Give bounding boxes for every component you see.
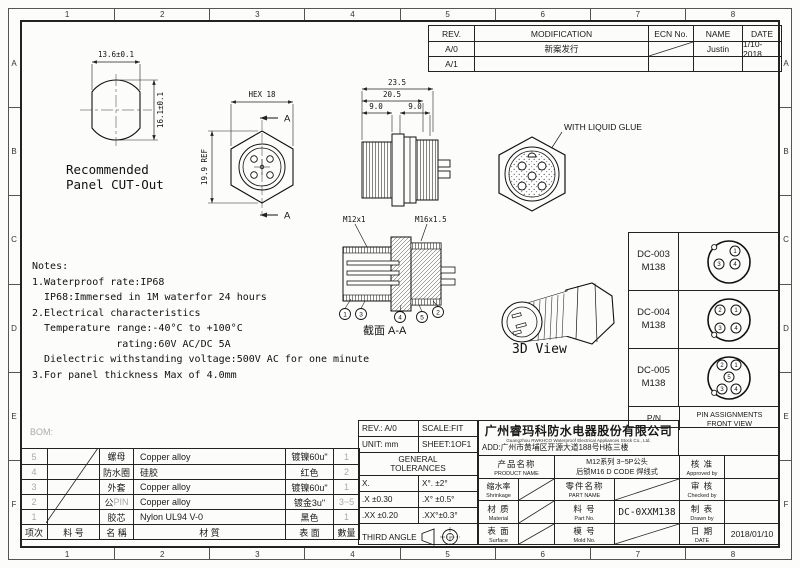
bom-qty: 1 [333, 479, 359, 494]
grid-row-label: D [780, 284, 792, 372]
shrinkage-value [518, 479, 554, 500]
product-name-value: M12系列 3~5P公头 后锁M16 D CODE 焊线式 [554, 456, 679, 478]
tol-xx: .XX ±0.20 [359, 508, 418, 523]
dim-total: 23.5 [388, 78, 406, 87]
grid-col-label: 6 [495, 548, 590, 560]
drawing-sheet: 12345678 12345678 ABCDEF ABCDEF REV. MOD… [0, 0, 800, 568]
balloon-4: 4 [398, 314, 402, 321]
rev-cell: A/0 [429, 41, 474, 56]
notes-block: Notes: 1.Waterproof rate:IP68 IP68:Immer… [32, 259, 369, 383]
bom-surface: 红色 [285, 464, 333, 479]
grid-col-label: 7 [590, 8, 685, 20]
pin-diagram-cell: 2 1 5 3 4 [679, 349, 779, 406]
third-angle-projection-icon [419, 526, 463, 548]
rev-header: MODIFICATION [474, 26, 648, 41]
revision-table: REV. MODIFICATION ECN No. NAME DATE A/0 … [428, 25, 782, 72]
grid-row-label: E [780, 372, 792, 460]
section-mark-top: A [284, 114, 291, 125]
tol-linear-header: X. [359, 476, 418, 491]
rev-header: REV. [429, 26, 474, 41]
third-angle-label: THIRD ANGLE [362, 533, 417, 542]
grid-col-label: 6 [495, 8, 590, 20]
bom-idx: 5 [21, 449, 47, 464]
tol-x-deg: .X° ±0.5° [418, 492, 477, 507]
drawn-by-label: 制 表 Drawn by [679, 501, 724, 523]
bom-surface: 镀镍60u" [285, 479, 333, 494]
grid-row-label: F [780, 460, 792, 548]
company-cell: 广州睿玛科防水电器股份有限公司 Guangzhou RWKHCO Waterpr… [479, 420, 679, 455]
bom-name: 螺母 [99, 449, 133, 464]
part-model: M138 [642, 320, 666, 332]
grid-col-label: 2 [114, 548, 209, 560]
rev-cell [648, 56, 693, 71]
grid-col-label: 1 [20, 8, 114, 20]
part-model: M138 [642, 262, 666, 274]
bom-qty: 1 [333, 449, 359, 464]
tol-angular-header: X°. ±2° [418, 476, 477, 491]
grid-col-label: 8 [685, 548, 780, 560]
thread-right-label: M16x1.5 [415, 215, 447, 224]
tolerance-block: REV.: A/0 SCALE:FIT UNIT: mm SHEET:1OF1 … [358, 420, 478, 545]
pin-row: DC-004 M138 2 1 3 4 [629, 291, 779, 349]
bom-material: Copper alloy [133, 494, 285, 509]
diagonal-slash [615, 524, 679, 544]
shrinkage-label: 缩水率 Shrinkage [479, 479, 518, 500]
pin-diagram-3pin: 1 3 4 [679, 234, 779, 290]
date-label: 日 期 DATE [679, 524, 724, 544]
bom-label: BOM: [30, 427, 53, 437]
bom-surface: 黑色 [285, 509, 333, 524]
diagonal-slash [519, 524, 554, 544]
grid-col-label: 3 [209, 8, 304, 20]
bom-qty: 3~5 [333, 494, 359, 509]
bom-idx: 2 [21, 494, 47, 509]
grid-row-label: A [8, 20, 20, 107]
dim-width-label: 13.6±0.1 [98, 50, 134, 59]
grid-ruler-right: ABCDEF [780, 20, 792, 548]
bom-idx: 4 [21, 464, 47, 479]
dim-mid: 20.5 [383, 90, 401, 99]
grid-col-label: 1 [20, 548, 114, 560]
grid-ruler-left: ABCDEF [8, 20, 20, 548]
bom-surface: 镀镍60u" [285, 449, 333, 464]
part-number-cell: DC-003 M138 [629, 233, 679, 290]
part-number: DC-005 [637, 365, 670, 377]
approved-by-value [724, 456, 779, 478]
pin-row: DC-003 M138 1 3 4 [629, 233, 779, 291]
dim-hex-label: HEX 18 [248, 90, 276, 99]
panel-cutout-caption: Recommended Panel CUT-Out [66, 162, 164, 192]
mold-no-value [614, 524, 679, 544]
part-number-cell: DC-004 M138 [629, 291, 679, 348]
mold-no-label: 模 号 Mold No. [554, 524, 614, 544]
bom-header: 表 面 [285, 524, 333, 539]
material-label: 材 质 Material [479, 501, 518, 523]
grid-row-label: B [8, 107, 20, 195]
balloon-2: 2 [436, 309, 440, 316]
bom-header: 名 稱 [99, 524, 133, 539]
surface-label: 表 面 Surface [479, 524, 518, 544]
panel-cutout-view: 13.6±0.1 16.1±0.1 [56, 48, 176, 160]
grid-ruler-top: 12345678 [20, 8, 780, 20]
rev-cell [474, 56, 648, 71]
grid-col-label: 2 [114, 8, 209, 20]
grid-row-label: B [780, 107, 792, 195]
bom-material: 硅胶 [133, 464, 285, 479]
checked-by-value [724, 479, 779, 500]
hex-front-view: HEX 18 19.9 REF A A [200, 88, 330, 223]
bom-material: Copper alloy [133, 479, 285, 494]
bom-material: Nylon UL94 V-0 [133, 509, 285, 524]
bom-material: Copper alloy [133, 449, 285, 464]
bom-idx: 1 [21, 509, 47, 524]
balloon-5: 5 [420, 314, 424, 321]
dim-ref-label: 19.9 REF [200, 148, 209, 185]
unit-field: UNIT: mm [359, 437, 418, 452]
dim-left: 9.0 [369, 102, 383, 111]
title-block: 广州睿玛科防水电器股份有限公司 Guangzhou RWKHCO Waterpr… [478, 420, 780, 545]
pin-row: DC-005 M138 2 1 5 3 4 [629, 349, 779, 407]
product-name-label: 产品名称 PRODUCT NAME [479, 456, 554, 478]
diagonal-slash [519, 501, 554, 523]
part-number-cell: DC-005 M138 [629, 349, 679, 406]
diagonal-slash [649, 42, 693, 56]
section-caption: 截面 A-A [363, 323, 407, 337]
rev-field: REV.: A/0 [359, 421, 418, 436]
bom-name: 胶芯 [99, 509, 133, 524]
rev-cell: Justin [693, 41, 742, 56]
bom-name: 公PIN [99, 494, 133, 509]
liquid-glue-view: WITH LIQUID GLUE [488, 118, 663, 218]
company-address: ADD:广州市黄埔区开源大道188号H栋三楼 [479, 443, 678, 452]
bom-header: 料 号 [47, 524, 99, 539]
tol-x: .X ±0.30 [359, 492, 418, 507]
part-name-label: 零件名称 PART NAME [554, 479, 614, 500]
grid-row-label: F [8, 460, 20, 548]
bom-name: 外套 [99, 479, 133, 494]
bom-qty: 1 [333, 509, 359, 524]
company-name: 广州睿玛科防水电器股份有限公司 [479, 425, 678, 438]
pin-diagram-4pin: 2 1 3 4 [679, 292, 779, 348]
side-view: 23.5 20.5 9.0 9.0 [350, 76, 462, 216]
grid-col-label: 8 [685, 8, 780, 20]
rev-cell [693, 56, 742, 71]
section-mark-bottom: A [284, 211, 291, 222]
pin-assignment-table: DC-003 M138 1 3 4 DC-004 M138 [628, 232, 780, 428]
part-number: DC-003 [637, 249, 670, 261]
approved-by-label: 核 准 Approved by [679, 456, 724, 478]
general-tolerances-header: GENERAL TOLERANCES [359, 453, 477, 475]
thread-left-label: M12x1 [343, 215, 366, 224]
grid-row-label: D [8, 284, 20, 372]
grid-col-label: 7 [590, 548, 685, 560]
rev-header: NAME [693, 26, 742, 41]
part-model: M138 [642, 378, 666, 390]
tol-xx-deg: .XX°±0.3° [418, 508, 477, 523]
rev-cell [742, 56, 781, 71]
glue-label: WITH LIQUID GLUE [564, 122, 642, 132]
rev-cell: 新案发行 [474, 41, 648, 56]
pin-diagram-cell: 1 3 4 [679, 233, 779, 290]
part-no-value: DC-0XXM138 [614, 501, 679, 523]
material-value [518, 501, 554, 523]
three-d-caption: 3D View [512, 342, 567, 357]
surface-value [518, 524, 554, 544]
rev-cell [648, 41, 693, 56]
part-no-label: 料 号 Part No. [554, 501, 614, 523]
diagonal-slash [519, 479, 554, 500]
date-value: 2018/01/10 [724, 524, 779, 544]
bom-header: 數量 [333, 524, 359, 539]
bom-idx: 3 [21, 479, 47, 494]
grid-col-label: 3 [209, 548, 304, 560]
scale-field: SCALE:FIT [418, 421, 477, 436]
bom-surface: 镀金3u" [285, 494, 333, 509]
dim-height-label: 16.1±0.1 [156, 92, 165, 128]
rev-cell: 1/10-2018 [742, 41, 781, 56]
checked-by-label: 审 核 Checked by [679, 479, 724, 500]
rev-header: ECN No. [648, 26, 693, 41]
pin-diagram-cell: 2 1 3 4 [679, 291, 779, 348]
bom-name: 防水圈 [99, 464, 133, 479]
pin-diagram-5pin: 2 1 5 3 4 [679, 350, 779, 406]
drawn-by-value [724, 501, 779, 523]
grid-row-label: C [780, 195, 792, 283]
grid-row-label: C [8, 195, 20, 283]
rev-cell: A/1 [429, 56, 474, 71]
bom-header: 材 質 [133, 524, 285, 539]
sheet-field: SHEET:1OF1 [418, 437, 477, 452]
grid-col-label: 5 [400, 8, 495, 20]
bom-qty: 2 [333, 464, 359, 479]
rev-header: DATE [742, 26, 781, 41]
bom-header: 项次 [21, 524, 47, 539]
third-angle-field: THIRD ANGLE [359, 526, 477, 548]
part-name-value [614, 479, 679, 500]
diagonal-slash [615, 479, 679, 500]
dim-right: 9.0 [408, 102, 422, 111]
part-number: DC-004 [637, 307, 670, 319]
bom-diagonal-slash [46, 448, 98, 523]
grid-row-label: E [8, 372, 20, 460]
grid-col-label: 4 [304, 8, 399, 20]
